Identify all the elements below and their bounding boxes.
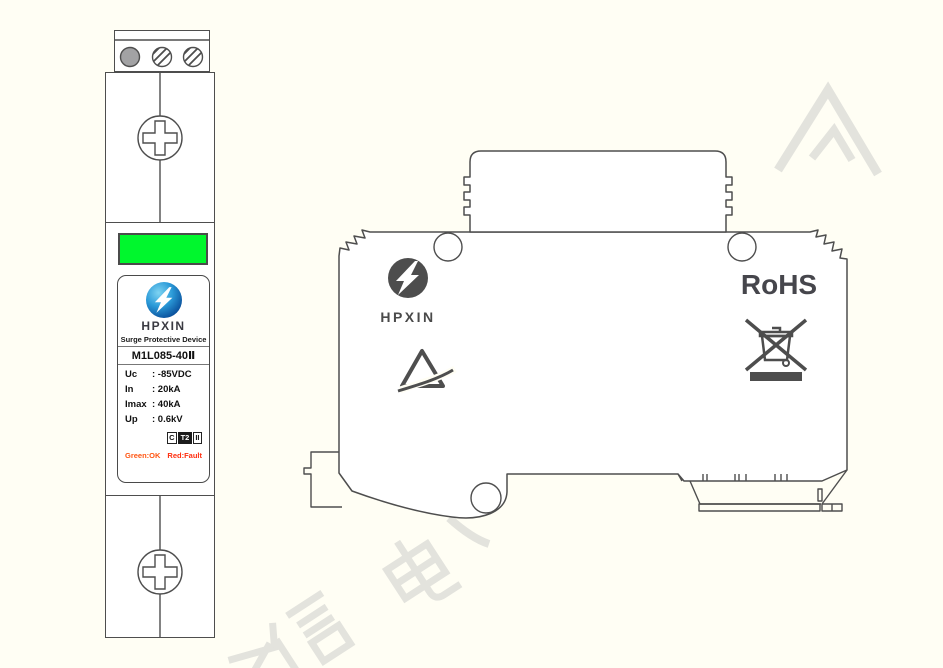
- terminal-block: [114, 30, 210, 72]
- brand-logo: [146, 282, 182, 318]
- watermark-stroke: [449, 518, 489, 544]
- diagram-canvas: HPXIN Surge Protective Device M1L085-40Ⅱ…: [0, 0, 943, 668]
- clip-spring-hole: [471, 483, 501, 513]
- lightning-bolt-icon: [396, 261, 419, 295]
- side-view: HPXIN RoHS: [304, 151, 847, 518]
- spec-row-uc: Uc : -85VDC: [125, 367, 202, 382]
- mounting-foot: [304, 452, 342, 507]
- side-brand-text: HPXIN: [380, 309, 435, 325]
- class-marks: C T2 II: [118, 432, 209, 444]
- body-section-line-top: [106, 222, 214, 223]
- spec-value: : -85VDC: [152, 367, 192, 382]
- spec-param: Uc: [125, 367, 152, 382]
- status-fault-text: Red:Fault: [167, 451, 202, 460]
- spec-table: Uc : -85VDC In : 20kA Imax : 40kA Up : 0…: [118, 365, 209, 429]
- lightning-bolt-icon: [147, 283, 181, 317]
- model-number: M1L085-40Ⅱ: [132, 347, 196, 364]
- spec-param: In: [125, 382, 152, 397]
- class-mark-c: C: [167, 432, 177, 444]
- rohs-text: RoHS: [741, 269, 817, 300]
- body-section-line-bottom: [106, 495, 214, 496]
- spec-row-in: In : 20kA: [125, 382, 202, 397]
- mounting-hole-right: [728, 233, 756, 261]
- spec-value: : 40kA: [152, 397, 181, 412]
- watermark-partial-glyph-top: [778, 90, 878, 174]
- spec-param: Up: [125, 412, 152, 427]
- watermark-partial-glyph: [229, 632, 288, 668]
- spec-value: : 0.6kV: [152, 412, 183, 427]
- brand-logo-side: [388, 258, 428, 298]
- spec-row-up: Up : 0.6kV: [125, 412, 202, 427]
- rating-label: HPXIN Surge Protective Device M1L085-40Ⅱ…: [117, 275, 210, 483]
- spec-param: Imax: [125, 397, 152, 412]
- plug-module: [464, 151, 732, 232]
- watermark-glyph-dian: [377, 525, 460, 613]
- class-mark-ii: II: [193, 432, 202, 444]
- side-body-outline: [339, 230, 847, 518]
- brand-name: HPXIN: [141, 319, 185, 333]
- class-mark-t2: T2: [178, 432, 192, 444]
- device-type-text: Surge Protective Device: [121, 335, 207, 346]
- status-ok-text: Green:OK: [125, 451, 160, 460]
- certification-triangle-icon: [398, 351, 455, 391]
- status-indicator-window: [118, 233, 208, 265]
- spec-row-imax: Imax : 40kA: [125, 397, 202, 412]
- mounting-hole-left: [434, 233, 462, 261]
- spec-value: : 20kA: [152, 382, 181, 397]
- din-rail-clip: [471, 470, 847, 513]
- watermark-glyph-xin: [263, 591, 354, 668]
- weee-crossed-bin-icon: [746, 320, 806, 381]
- weee-bar: [750, 372, 802, 381]
- status-legend: Green:OK Red:Fault: [125, 451, 202, 460]
